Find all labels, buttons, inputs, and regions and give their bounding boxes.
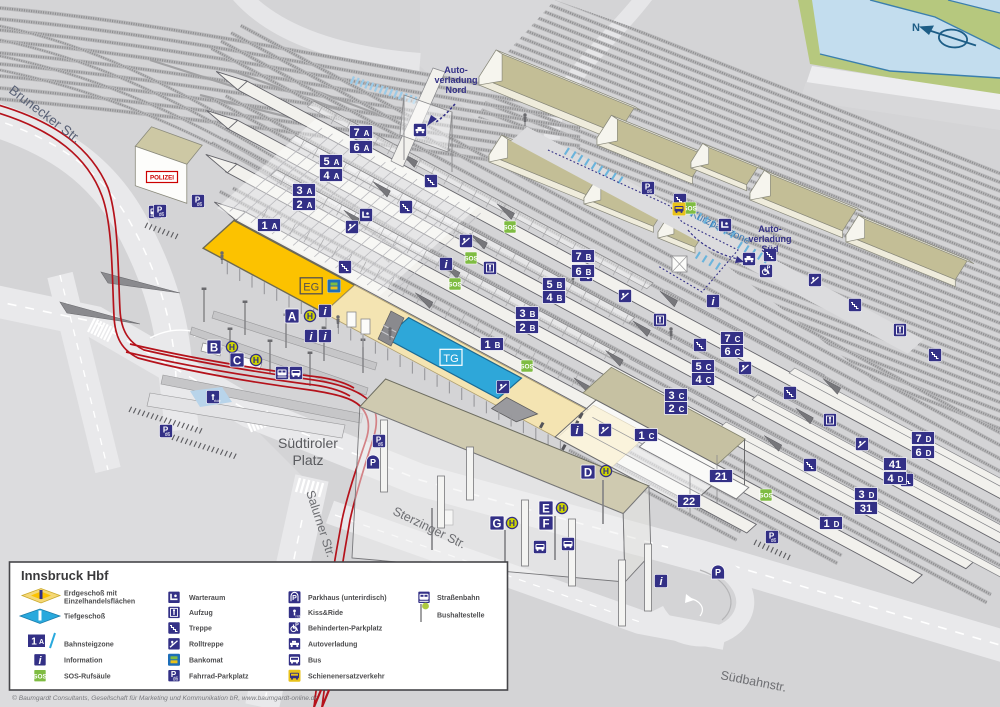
svg-text:Fahrrad-Parkplatz: Fahrrad-Parkplatz <box>189 673 249 680</box>
svg-text:2: 2 <box>519 322 525 334</box>
svg-text:P: P <box>715 568 721 578</box>
svg-text:Auto-: Auto- <box>758 224 782 234</box>
svg-text:6: 6 <box>724 346 730 358</box>
svg-text:H: H <box>559 503 565 513</box>
svg-text:C: C <box>679 405 685 414</box>
svg-text:d6: d6 <box>197 202 203 208</box>
svg-text:Südtiroler: Südtiroler <box>278 435 338 451</box>
svg-text:d6: d6 <box>173 677 179 683</box>
svg-text:B: B <box>495 341 501 350</box>
svg-text:3: 3 <box>519 308 525 320</box>
svg-text:C: C <box>649 432 655 441</box>
svg-text:1: 1 <box>823 518 829 530</box>
svg-text:B: B <box>557 281 563 290</box>
svg-text:H: H <box>307 311 313 321</box>
svg-text:P: P <box>767 266 771 272</box>
svg-text:Behinderten-Parkplatz: Behinderten-Parkplatz <box>308 626 383 633</box>
svg-text:1: 1 <box>261 220 267 232</box>
svg-text:Innsbruck Hbf: Innsbruck Hbf <box>21 568 109 583</box>
svg-text:C: C <box>735 335 741 344</box>
svg-text:31: 31 <box>860 503 872 515</box>
svg-text:B: B <box>586 253 592 262</box>
svg-text:Bahnsteigzone: Bahnsteigzone <box>64 642 114 649</box>
svg-text:4: 4 <box>695 374 702 386</box>
svg-text:4: 4 <box>546 292 553 304</box>
svg-text:C: C <box>706 363 712 372</box>
svg-text:Süd: Süd <box>762 244 779 254</box>
svg-text:verladung: verladung <box>748 234 791 244</box>
svg-text:6: 6 <box>353 142 359 154</box>
svg-text:Tiefgeschoß: Tiefgeschoß <box>64 614 106 621</box>
svg-text:22: 22 <box>683 496 695 508</box>
svg-text:3: 3 <box>296 185 302 197</box>
svg-text:B: B <box>530 324 536 333</box>
svg-text:H: H <box>603 466 609 476</box>
svg-text:5: 5 <box>546 279 552 291</box>
svg-text:B: B <box>210 342 218 354</box>
svg-text:ride: ride <box>296 613 303 618</box>
svg-text:Bushaltestelle: Bushaltestelle <box>437 613 485 620</box>
svg-text:d6: d6 <box>647 189 653 195</box>
svg-text:2: 2 <box>668 403 674 415</box>
svg-text:EG: EG <box>303 281 319 293</box>
svg-text:d6: d6 <box>771 538 777 544</box>
svg-text:d6: d6 <box>378 442 384 448</box>
svg-text:4: 4 <box>887 473 894 485</box>
svg-text:Platz: Platz <box>292 452 323 468</box>
svg-text:A: A <box>272 222 278 231</box>
svg-text:A: A <box>364 144 370 153</box>
svg-text:5: 5 <box>323 156 329 168</box>
svg-text:SOS: SOS <box>759 493 773 500</box>
svg-text:N: N <box>912 22 920 34</box>
svg-text:© Baumgardt Consultants, Gesel: © Baumgardt Consultants, Gesellschaft fü… <box>12 694 318 702</box>
svg-text:D: D <box>926 435 932 444</box>
svg-text:Treppe: Treppe <box>189 626 212 633</box>
svg-text:Rolltreppe: Rolltreppe <box>189 641 224 648</box>
svg-text:Bankomat: Bankomat <box>189 657 224 664</box>
svg-text:B: B <box>586 268 592 277</box>
svg-text:7: 7 <box>575 251 581 263</box>
svg-text:C: C <box>233 355 241 367</box>
svg-text:D: D <box>834 520 840 529</box>
svg-text:21: 21 <box>715 471 727 483</box>
svg-text:P: P <box>295 623 299 629</box>
svg-text:3: 3 <box>668 390 674 402</box>
svg-text:ride: ride <box>214 398 221 403</box>
svg-text:d6: d6 <box>165 432 171 438</box>
svg-text:Erdgeschoß mit: Erdgeschoß mit <box>64 591 118 598</box>
svg-text:2: 2 <box>296 199 302 211</box>
svg-text:Straßenbahn: Straßenbahn <box>437 595 480 602</box>
svg-text:SOS: SOS <box>503 225 517 232</box>
svg-text:A: A <box>334 172 340 181</box>
svg-text:H: H <box>253 355 259 365</box>
svg-text:P: P <box>370 458 376 468</box>
svg-text:B: B <box>530 310 536 319</box>
svg-text:SOS: SOS <box>464 256 478 263</box>
svg-text:6: 6 <box>575 266 581 278</box>
svg-text:D: D <box>898 475 904 484</box>
svg-text:Auto-: Auto- <box>444 65 468 75</box>
svg-text:verladung: verladung <box>434 75 477 85</box>
svg-text:Autoverladung: Autoverladung <box>308 641 357 648</box>
svg-text:Bus: Bus <box>308 657 321 664</box>
svg-text:C: C <box>735 348 741 357</box>
svg-text:D: D <box>869 491 875 500</box>
svg-text:C: C <box>706 376 712 385</box>
svg-text:SOS-Rufsäule: SOS-Rufsäule <box>64 674 111 681</box>
svg-text:1: 1 <box>638 430 644 442</box>
svg-text:1: 1 <box>484 339 490 351</box>
svg-text:Aufzug: Aufzug <box>189 610 213 617</box>
svg-text:D: D <box>926 449 932 458</box>
svg-text:Einzelhandelsflächen: Einzelhandelsflächen <box>64 599 135 606</box>
svg-text:A: A <box>307 187 313 196</box>
svg-text:41: 41 <box>889 459 901 471</box>
svg-text:3: 3 <box>858 489 864 501</box>
svg-text:7: 7 <box>353 127 359 139</box>
svg-text:A: A <box>288 311 296 323</box>
svg-text:G: G <box>493 518 502 530</box>
svg-text:D: D <box>584 467 592 479</box>
svg-text:Kiss&Ride: Kiss&Ride <box>308 610 343 617</box>
svg-text:Warteraum: Warteraum <box>189 595 225 602</box>
svg-text:7: 7 <box>915 433 921 445</box>
svg-text:SOS: SOS <box>33 673 47 680</box>
svg-text:A: A <box>334 158 340 167</box>
svg-text:Information: Information <box>64 658 103 665</box>
svg-text:A: A <box>39 639 44 646</box>
svg-text:4: 4 <box>323 170 330 182</box>
svg-text:Schienenersatzverkehr: Schienenersatzverkehr <box>308 673 385 680</box>
svg-text:d6: d6 <box>159 212 165 218</box>
svg-text:TG: TG <box>443 353 458 365</box>
svg-text:C: C <box>679 392 685 401</box>
svg-text:5: 5 <box>695 361 701 373</box>
svg-text:SOS: SOS <box>520 364 534 371</box>
svg-text:SOS: SOS <box>448 282 462 289</box>
svg-text:H: H <box>509 518 515 528</box>
svg-text:H: H <box>229 342 235 352</box>
svg-text:Parkhaus (unterirdisch): Parkhaus (unterirdisch) <box>308 595 387 602</box>
svg-text:7: 7 <box>724 333 730 345</box>
svg-text:A: A <box>307 201 313 210</box>
svg-text:F: F <box>542 518 549 530</box>
svg-text:Nord: Nord <box>446 85 467 95</box>
svg-text:E: E <box>542 503 550 515</box>
svg-text:P: P <box>292 595 297 602</box>
svg-text:A: A <box>364 129 370 138</box>
svg-text:6: 6 <box>915 447 921 459</box>
svg-text:B: B <box>557 294 563 303</box>
svg-text:POLIZEI: POLIZEI <box>150 175 174 182</box>
svg-text:1: 1 <box>31 637 37 648</box>
